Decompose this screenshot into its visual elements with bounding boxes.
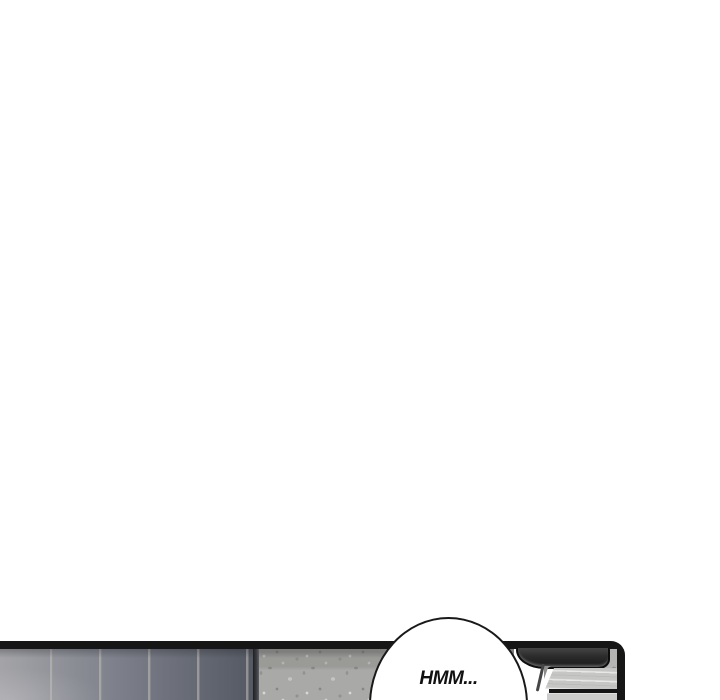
counter-top bbox=[545, 668, 617, 689]
tiled-wall bbox=[0, 649, 253, 700]
cabinet-front bbox=[547, 693, 617, 700]
hanging-utensil-blade bbox=[544, 666, 551, 679]
comic-panel-frame bbox=[0, 641, 625, 700]
webtoon-page: HMM... bbox=[0, 0, 720, 700]
speech-bubble-text: HMM... bbox=[371, 669, 526, 689]
speech-bubble: HMM... bbox=[369, 617, 528, 700]
range-hood bbox=[516, 648, 610, 669]
